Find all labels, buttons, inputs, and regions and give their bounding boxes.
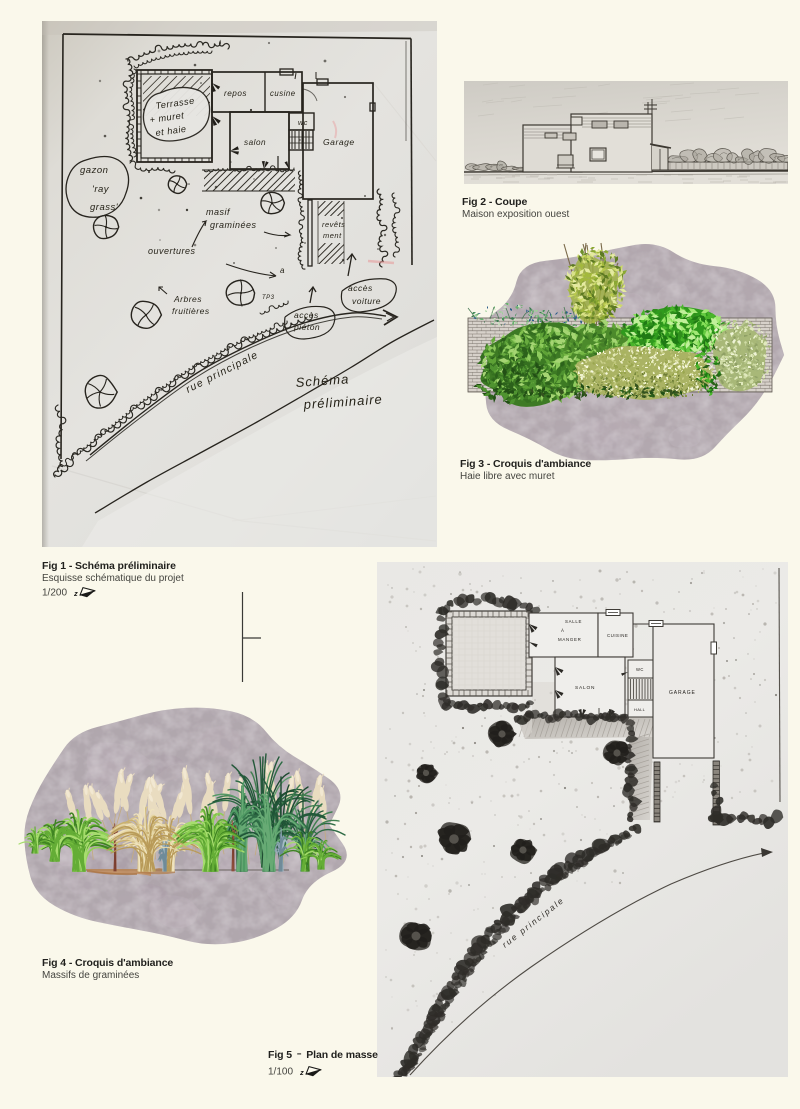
- svg-text:a: a: [280, 266, 285, 275]
- svg-text:voiture: voiture: [352, 296, 381, 306]
- svg-text:piéton: piéton: [293, 322, 320, 332]
- svg-text:SALLE: SALLE: [565, 619, 582, 624]
- svg-text:revêts: revêts: [322, 220, 345, 229]
- svg-text:CUISINE: CUISINE: [607, 633, 628, 638]
- svg-text:Garage: Garage: [323, 137, 355, 147]
- svg-text:ment: ment: [323, 231, 342, 240]
- svg-text:gazon: gazon: [80, 165, 108, 176]
- svg-text:MANGER: MANGER: [558, 637, 581, 642]
- svg-text:HALL: HALL: [634, 707, 646, 712]
- svg-text:ouvertures: ouvertures: [148, 246, 196, 256]
- svg-text:grass': grass': [90, 202, 119, 213]
- svg-text:cusine: cusine: [270, 89, 296, 98]
- svg-text:À: À: [561, 628, 565, 633]
- svg-text:Arbres: Arbres: [173, 294, 202, 304]
- svg-text:accès: accès: [294, 310, 319, 320]
- svg-text:graminées: graminées: [210, 220, 257, 230]
- svg-text:z: z: [73, 589, 78, 598]
- svg-text:fruitières: fruitières: [172, 306, 210, 316]
- svg-text:TP3: TP3: [262, 295, 275, 301]
- svg-text:repos: repos: [224, 89, 247, 98]
- svg-text:accès: accès: [348, 283, 373, 293]
- svg-text:masif: masif: [206, 207, 231, 217]
- svg-text:'ray: 'ray: [92, 184, 110, 195]
- svg-text:SALON: SALON: [575, 685, 595, 691]
- svg-text:WC: WC: [636, 667, 644, 672]
- svg-text:z: z: [299, 1068, 304, 1077]
- svg-text:salon: salon: [244, 138, 266, 147]
- svg-text:GARAGE: GARAGE: [669, 690, 696, 696]
